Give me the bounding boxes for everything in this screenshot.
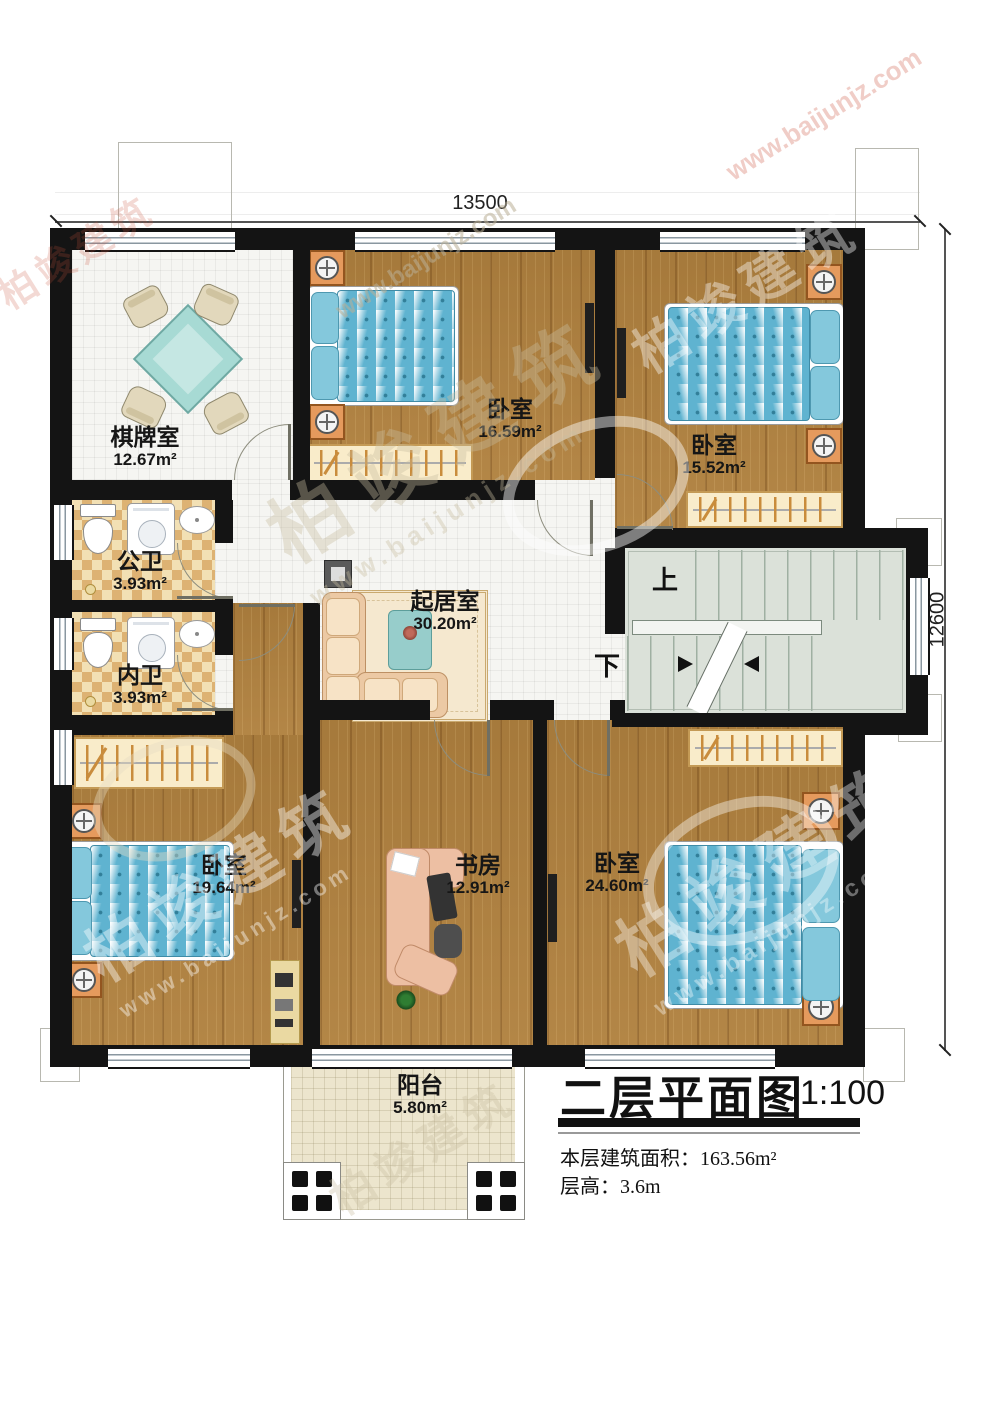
wardrobe <box>686 491 843 528</box>
door-leaf <box>288 424 291 480</box>
sofa-cushion <box>326 598 360 636</box>
toilet-bowl <box>83 518 113 554</box>
pillow <box>311 346 339 400</box>
wall <box>303 603 320 1045</box>
dresser-item <box>275 973 293 987</box>
blanket <box>668 845 802 1005</box>
dresser-item <box>275 999 293 1011</box>
window <box>355 230 555 252</box>
window <box>85 230 235 252</box>
room-name: 公卫 <box>113 548 167 574</box>
dresser-item <box>275 1019 293 1027</box>
stair-arrow-icon <box>678 656 693 672</box>
wall <box>843 735 865 1067</box>
nightstand <box>309 250 345 286</box>
wall <box>547 700 554 720</box>
pillar-dot <box>316 1195 332 1211</box>
room-area: 3.93m² <box>113 688 167 708</box>
pillow <box>311 292 339 344</box>
tv-icon <box>292 860 301 928</box>
toilet-tank <box>80 504 116 517</box>
wall <box>843 528 928 548</box>
nightstand <box>309 404 345 440</box>
tv-icon <box>617 328 626 398</box>
wall <box>215 597 233 655</box>
lamp-icon <box>72 809 96 833</box>
room-area: 15.52m² <box>682 458 745 478</box>
room-label-balcony: 阳台 5.80m² <box>393 1072 447 1118</box>
title-underline <box>558 1118 860 1127</box>
pillar-dot <box>500 1195 516 1211</box>
wall <box>290 480 535 500</box>
wall <box>612 713 843 727</box>
window <box>52 505 74 560</box>
room-label-bedroom2: 卧室 15.52m² <box>682 432 745 478</box>
floor-drain-icon <box>85 584 96 595</box>
wall <box>303 700 430 720</box>
title-underline-thin <box>558 1132 860 1134</box>
door-leaf <box>177 708 233 711</box>
lamp-icon <box>315 410 339 434</box>
toilet-bowl <box>83 632 113 668</box>
room-name: 阳台 <box>393 1072 447 1098</box>
pillar-dot <box>476 1171 492 1187</box>
room-label-study: 书房 12.91m² <box>446 852 509 898</box>
balcony-sliding-door <box>312 1047 512 1069</box>
hangers-icon <box>320 450 459 476</box>
toilet-tank <box>80 618 116 631</box>
floor-plan-page: 上 下 <box>0 0 1000 1416</box>
pillow <box>802 849 840 923</box>
room-name: 卧室 <box>585 850 648 876</box>
room-area: 16.59m² <box>478 422 541 442</box>
balcony-pillar <box>467 1162 525 1220</box>
wall <box>490 700 533 720</box>
blanket <box>668 307 810 421</box>
dimension-top-value: 13500 <box>430 192 530 215</box>
pillow <box>802 927 840 1001</box>
nightstand <box>806 264 842 300</box>
stair-up-label: 上 <box>652 560 678 597</box>
wall <box>215 500 233 543</box>
plant-icon <box>396 990 416 1010</box>
room-name: 卧室 <box>478 396 541 422</box>
floor-height-text: 层高：3.6m <box>560 1170 661 1199</box>
plan-scale: 1:100 <box>800 1074 885 1113</box>
pillar-dot <box>500 1171 516 1187</box>
wall <box>595 228 615 478</box>
room-label-bath-public: 公卫 3.93m² <box>113 548 167 594</box>
office-chair <box>434 924 462 958</box>
room-name: 棋牌室 <box>111 424 180 450</box>
room-area: 5.80m² <box>393 1098 447 1118</box>
window <box>52 618 74 670</box>
wall <box>615 528 843 548</box>
window <box>52 730 74 785</box>
room-name: 卧室 <box>682 432 745 458</box>
stair-arrow-icon <box>744 656 759 672</box>
wall <box>293 228 310 480</box>
room-area: 12.67m² <box>111 450 180 470</box>
wardrobe <box>688 729 843 767</box>
lamp-icon <box>808 798 834 824</box>
side-table <box>324 560 352 588</box>
hangers-icon <box>699 497 831 522</box>
pillow <box>810 310 840 364</box>
room-name: 卧室 <box>192 852 255 878</box>
room-area: 3.93m² <box>113 574 167 594</box>
floor-area-text: 本层建筑面积：163.56m² <box>560 1142 777 1171</box>
dimension-line-top <box>55 221 920 223</box>
balcony-pillar <box>283 1162 341 1220</box>
hangers-icon <box>701 735 831 761</box>
nightstand <box>806 428 842 464</box>
lamp-icon <box>812 270 836 294</box>
toilet-icon <box>80 504 116 556</box>
lamp-icon <box>812 434 836 458</box>
toilet-icon <box>80 618 116 670</box>
tv-icon <box>548 874 557 942</box>
lamp-icon <box>72 968 96 992</box>
room-name: 内卫 <box>113 662 167 688</box>
room-name: 起居室 <box>411 588 480 614</box>
pillar-dot <box>316 1171 332 1187</box>
room-label-bath-private: 内卫 3.93m² <box>113 662 167 708</box>
window <box>660 230 805 252</box>
sink-icon <box>179 620 215 648</box>
room-label-living: 起居室 30.20m² <box>411 588 480 634</box>
room-label-chess: 棋牌室 12.67m² <box>111 424 180 470</box>
blanket <box>337 290 455 402</box>
dimension-right-value: 12600 <box>927 580 950 660</box>
room-area: 30.20m² <box>411 614 480 634</box>
floor-drain-icon <box>85 696 96 707</box>
wall <box>843 228 865 545</box>
room-name: 书房 <box>446 852 509 878</box>
door-leaf <box>607 720 610 776</box>
room-label-bedroom1: 卧室 16.59m² <box>478 396 541 442</box>
tv-icon <box>585 303 594 373</box>
door-leaf <box>487 720 490 776</box>
wall <box>605 548 625 634</box>
wall <box>533 700 547 1045</box>
room-area: 19.64m² <box>192 878 255 898</box>
door-leaf <box>590 500 593 556</box>
room-area: 12.91m² <box>446 878 509 898</box>
window <box>108 1047 250 1069</box>
wardrobe <box>307 444 473 482</box>
dresser <box>270 960 300 1044</box>
door-leaf <box>617 526 673 529</box>
room-label-bedroom4: 卧室 24.60m² <box>585 850 648 896</box>
wall <box>50 480 232 500</box>
sofa-cushion <box>326 637 360 675</box>
wall <box>843 713 928 735</box>
sink-icon <box>179 506 215 534</box>
stair-down-label: 下 <box>594 646 620 683</box>
lamp-icon <box>315 256 339 280</box>
pillar-dot <box>292 1195 308 1211</box>
pillar-dot <box>476 1195 492 1211</box>
nightstand <box>802 792 840 830</box>
room-label-bedroom3: 卧室 19.64m² <box>192 852 255 898</box>
stair-treads-upper <box>695 550 904 620</box>
pillar-dot <box>292 1171 308 1187</box>
door-leaf <box>239 604 295 607</box>
room-area: 24.60m² <box>585 876 648 896</box>
door-leaf <box>177 596 233 599</box>
wall <box>50 600 215 612</box>
wardrobe <box>74 737 224 789</box>
wall <box>50 715 233 735</box>
pillow <box>810 366 840 420</box>
